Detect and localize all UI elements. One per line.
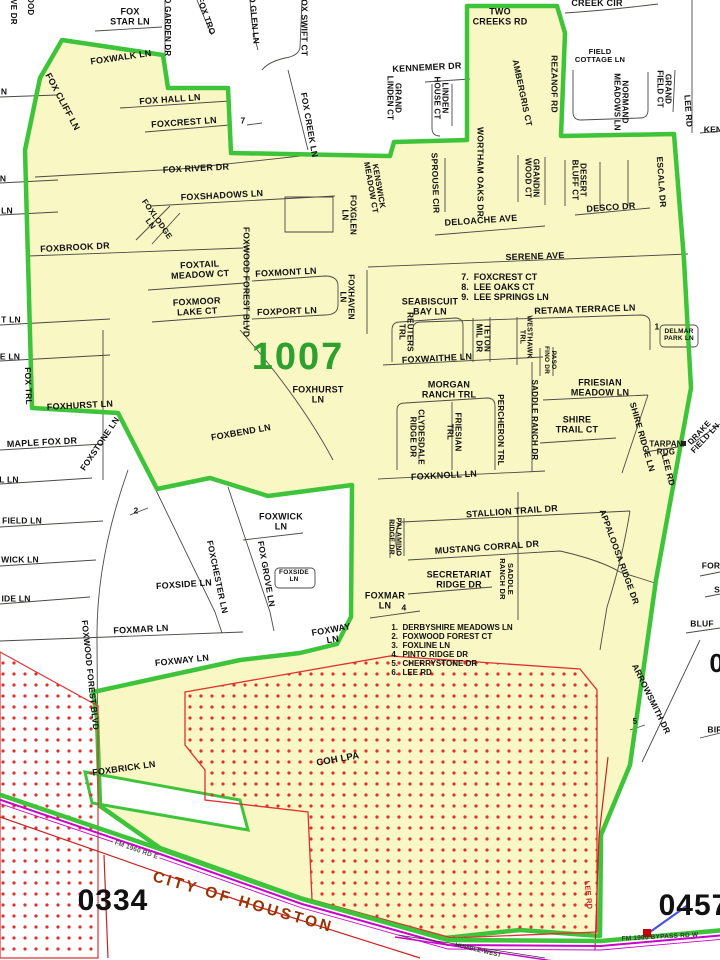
street-label: REUTERS TRL bbox=[397, 312, 414, 352]
street-label: MORGAN RANCH TRL bbox=[422, 380, 476, 399]
street-label: FOR bbox=[702, 562, 720, 571]
street-label: FRIESIAN TRL bbox=[445, 413, 462, 452]
street-label: N bbox=[0, 175, 6, 184]
street-label: GRAND FIELD CT bbox=[655, 70, 672, 108]
adjacent-precinct-number-partial: 04 bbox=[709, 650, 720, 678]
street-label: S bbox=[714, 586, 720, 595]
street-label: TWO CREEKS RD bbox=[473, 7, 528, 26]
street-label: CREEK CIR bbox=[571, 0, 622, 9]
street-label: FOXHURST LN bbox=[292, 385, 343, 404]
street-label: LEE RD bbox=[682, 95, 693, 128]
street-label: LINDEN HOUSE CT bbox=[432, 77, 449, 120]
street-label: TETON MIL DR bbox=[474, 324, 491, 353]
street-label: SHIRE TRAIL CT bbox=[556, 415, 598, 434]
street-label: KEN bbox=[704, 126, 720, 135]
reference-list: 7. FOXCREST CT8. LEE OAKS CT9. LEE SPRIN… bbox=[461, 272, 549, 302]
street-label: FOX TRL bbox=[23, 367, 33, 405]
street-label: GRANDIN WOOD CT bbox=[523, 158, 540, 198]
street-label: FOX STAR LN bbox=[110, 7, 150, 26]
street-label: D GARDEN DR bbox=[163, 0, 171, 56]
street-label: FOXGLEN LN bbox=[340, 195, 357, 235]
street-label: T LN bbox=[1, 316, 21, 325]
precinct-number: 1007 bbox=[252, 337, 345, 377]
street-label: PERCHERON TRL bbox=[496, 394, 504, 466]
reference-list: 1. DERBYSHIRE MEADOWS LN2. FOXWOOD FORES… bbox=[391, 624, 512, 678]
adjacent-precinct-number: 0334 bbox=[78, 885, 149, 917]
street-label: IDE LN bbox=[1, 595, 30, 604]
street-label: LEE RD bbox=[583, 880, 594, 909]
precinct-map: FOX STAR LNFOXWALK LNVE DROODD GARDEN DR… bbox=[0, 0, 720, 960]
street-label: DESERT BLUFF CT bbox=[570, 160, 587, 201]
street-label: REZANOF RD bbox=[550, 55, 559, 113]
street-label: CLYDESDALE RIDGE DR bbox=[408, 409, 425, 465]
reference-list-item: 8. LEE OAKS CT bbox=[461, 282, 549, 292]
street-label: N bbox=[1, 88, 7, 97]
street-label: BLUF bbox=[690, 620, 713, 629]
street-label: FOXMOOR LAKE CT bbox=[173, 296, 222, 318]
reference-list-item: 6. LEE RD bbox=[391, 669, 512, 678]
street-label: FOXTAIL MEADOW CT bbox=[170, 259, 229, 281]
street-label: LN bbox=[1, 207, 13, 216]
street-label: WESTHAWK TRL bbox=[518, 315, 533, 358]
street-label: WORTHAM OAKS DR bbox=[476, 127, 485, 217]
street-label: 2 bbox=[134, 507, 139, 516]
street-label: SECRETARIAT RIDGE DR bbox=[427, 570, 492, 589]
street-label: FIELD COTTAGE LN bbox=[575, 48, 625, 64]
street-label: FOX SWIFT CT bbox=[300, 0, 309, 56]
street-label: FRIESIAN MEADOW LN bbox=[571, 378, 629, 397]
street-label: BIR bbox=[707, 726, 720, 735]
street-label: FOXWICK LN bbox=[259, 512, 303, 531]
reference-list-item: 7. FOXCREST CT bbox=[461, 272, 549, 282]
street-label: VE DR bbox=[9, 0, 17, 25]
street-label: WICK LN bbox=[1, 556, 39, 565]
street-label: L LN bbox=[0, 476, 19, 485]
street-label: PALAMINO RIDGE DR bbox=[387, 518, 402, 556]
street-label: 5 bbox=[633, 718, 638, 726]
street-label: GRAND LINDEN CT bbox=[385, 76, 402, 120]
street-label: FOXWOOD FOREST BLVD bbox=[242, 227, 251, 337]
street-label: E LN bbox=[0, 353, 20, 362]
street-label: FOXSIDE LN bbox=[279, 570, 309, 584]
street-label: FOXHAVEN LN bbox=[338, 274, 355, 319]
street-label: PASO FINO DR bbox=[542, 346, 556, 374]
street-label: 1 bbox=[655, 323, 660, 332]
street-label: NORMAND MEADOWS LN bbox=[612, 73, 629, 131]
street-label: 7 bbox=[241, 117, 246, 126]
street-label: SADDLE RANCH DR bbox=[498, 558, 514, 600]
street-label: OOD bbox=[26, 0, 34, 15]
street-label: SPROUSE CIR bbox=[429, 152, 440, 213]
adjacent-precinct-number-partial: 99 bbox=[416, 0, 450, 6]
street-label: DELMAR PARK LN bbox=[664, 329, 694, 343]
street-label: FOXMAR LN bbox=[365, 591, 405, 610]
adjacent-precinct-number: 0457 bbox=[659, 890, 720, 922]
map-canvas bbox=[0, 0, 720, 960]
reference-list-item: 9. LEE SPRINGS LN bbox=[461, 292, 549, 302]
street-label: 4 bbox=[402, 604, 407, 613]
street-label: SADDLE RANCH DR bbox=[530, 380, 538, 461]
street-label: FIELD LN bbox=[2, 517, 42, 526]
